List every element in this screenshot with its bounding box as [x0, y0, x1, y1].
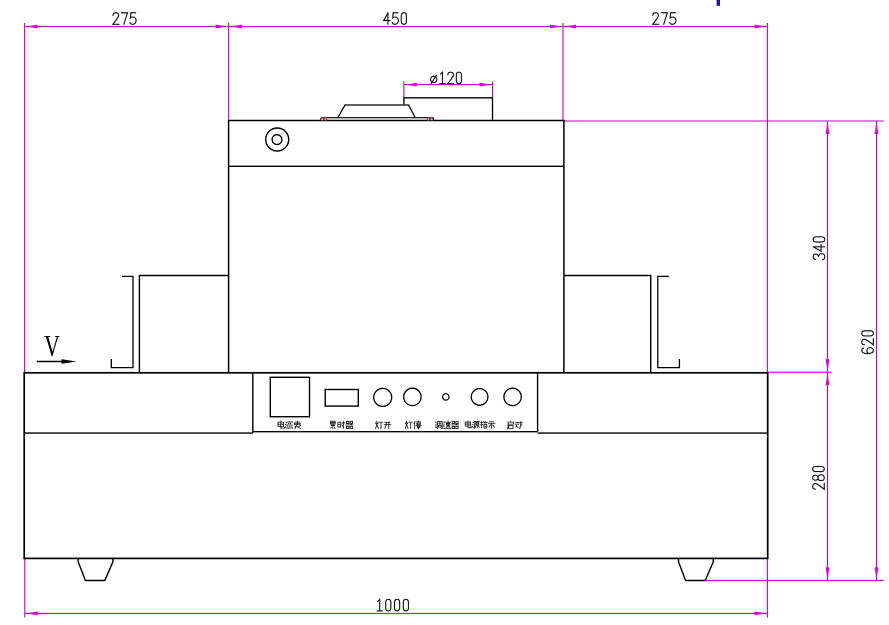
svg-text:V: V [44, 328, 60, 363]
